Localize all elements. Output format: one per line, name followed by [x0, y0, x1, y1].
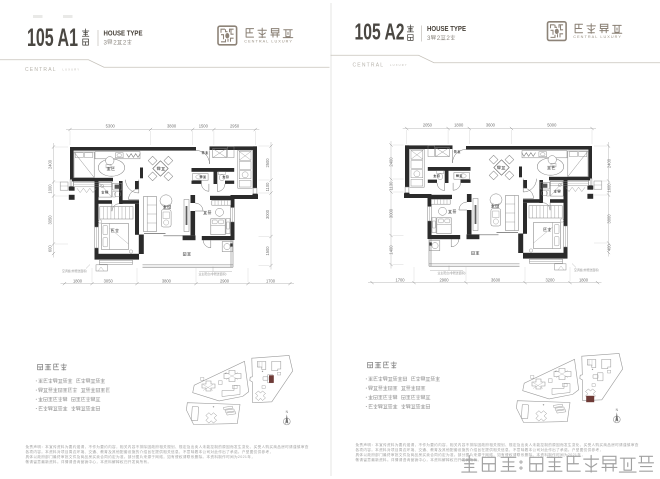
- svg-text:3600: 3600: [486, 123, 496, 128]
- svg-text:HOUSE TYPE: HOUSE TYPE: [104, 29, 143, 38]
- svg-text:CENTRAL: CENTRAL: [353, 62, 385, 68]
- svg-text:5300: 5300: [106, 124, 116, 129]
- svg-text:各项内容。本资料对项目周边环境、交通、教育及其他配套设施的介: 各项内容。本资料对项目周边环境、交通、教育及其他配套设施的介绍旨在提供相关信息，…: [356, 447, 604, 452]
- svg-text:2: 2: [446, 35, 450, 42]
- svg-text:2050: 2050: [423, 123, 433, 128]
- svg-text:1500: 1500: [199, 124, 209, 129]
- svg-text:1800: 1800: [73, 278, 83, 283]
- svg-text:具体以政府部门最终审批文件及商品房买卖合同约定为准。部分图片: 具体以政府部门最终审批文件及商品房买卖合同约定为准。部分图片来源于网络，如有侵权…: [356, 452, 586, 457]
- svg-text:1130: 1130: [389, 181, 394, 191]
- svg-text:2: 2: [437, 35, 441, 42]
- svg-text:CENTRAL LUXURY: CENTRAL LUXURY: [244, 40, 293, 44]
- svg-text:3000: 3000: [265, 209, 270, 219]
- svg-text:1400: 1400: [389, 245, 394, 255]
- svg-text:1800: 1800: [579, 277, 589, 282]
- svg-text:2: 2: [123, 40, 127, 47]
- svg-text:CENTRAL: CENTRAL: [25, 67, 57, 73]
- svg-text:敬请留意最新资料。详情请咨询营销中心，本资料解释权归开发商所: 敬请留意最新资料。详情请咨询营销中心，本资料解释权归开发商所有。: [26, 459, 152, 464]
- svg-text:HOUSE TYPE: HOUSE TYPE: [427, 24, 466, 33]
- svg-text:3000: 3000: [389, 208, 394, 218]
- svg-text:2900: 2900: [439, 277, 449, 282]
- svg-text:2400: 2400: [48, 159, 53, 169]
- svg-text:LUXURY: LUXURY: [63, 67, 81, 71]
- svg-text:3: 3: [104, 40, 108, 47]
- svg-text:免责声明：本宣传资料为要约邀请，不作为要约内容，相关内容不排: 免责声明：本宣传资料为要约邀请，不作为要约内容，相关内容不排除因政府相关规划、规…: [356, 442, 639, 447]
- svg-text:各项内容。本资料对项目周边环境、交通、教育及其他配套设施的介: 各项内容。本资料对项目周边环境、交通、教育及其他配套设施的介绍旨在提供相关信息，…: [26, 449, 274, 454]
- svg-text:LUXURY: LUXURY: [390, 63, 408, 67]
- svg-text:空调板(非赠送面积): 空调板(非赠送面积): [62, 268, 87, 273]
- svg-text:3000: 3000: [606, 214, 611, 224]
- svg-text:1100: 1100: [265, 182, 270, 192]
- svg-text:2950: 2950: [230, 124, 240, 129]
- svg-text:400: 400: [606, 244, 611, 252]
- svg-text:1600: 1600: [606, 183, 611, 193]
- svg-text:3: 3: [427, 35, 431, 42]
- svg-text:2: 2: [113, 40, 117, 47]
- svg-text:具体以政府部门最终审批文件及商品房买卖合同约定为准。部分图片: 具体以政府部门最终审批文件及商品房买卖合同约定为准。部分图片来源于网络，如有侵权…: [26, 454, 256, 459]
- svg-text:1700: 1700: [395, 277, 405, 282]
- svg-text:105 A2: 105 A2: [355, 19, 405, 45]
- svg-text:业主阳台(非赠送面积): 业主阳台(非赠送面积): [438, 270, 466, 275]
- svg-text:3600: 3600: [491, 277, 501, 282]
- svg-text:2400: 2400: [389, 157, 394, 167]
- svg-text:2400: 2400: [606, 158, 611, 168]
- svg-text:2900: 2900: [220, 278, 230, 283]
- svg-text:3800: 3800: [167, 124, 177, 129]
- svg-text:免责声明：本宣传资料为要约邀请，不作为要约内容，相关内容不排: 免责声明：本宣传资料为要约邀请，不作为要约内容，相关内容不排除因政府相关规划、规…: [26, 444, 309, 449]
- svg-text:CENTRAL LUXURY: CENTRAL LUXURY: [573, 35, 622, 39]
- svg-text:3800: 3800: [162, 278, 172, 283]
- svg-text:3050: 3050: [48, 215, 53, 225]
- svg-text:2500: 2500: [265, 158, 270, 168]
- svg-text:1500: 1500: [265, 246, 270, 256]
- svg-text:5000: 5000: [547, 123, 557, 128]
- svg-text:1700: 1700: [266, 278, 276, 283]
- svg-text:1000: 1000: [48, 184, 53, 194]
- svg-text:3200: 3200: [545, 277, 555, 282]
- svg-text:业主阳台(非赠送面积): 业主阳台(非赠送面积): [199, 271, 227, 276]
- svg-text:600: 600: [48, 245, 53, 253]
- svg-text:3050: 3050: [104, 278, 114, 283]
- svg-text:空调板(非赠送面积): 空调板(非赠送面积): [574, 267, 599, 272]
- svg-text:1800: 1800: [454, 123, 464, 128]
- svg-text:105 A1: 105 A1: [27, 24, 78, 52]
